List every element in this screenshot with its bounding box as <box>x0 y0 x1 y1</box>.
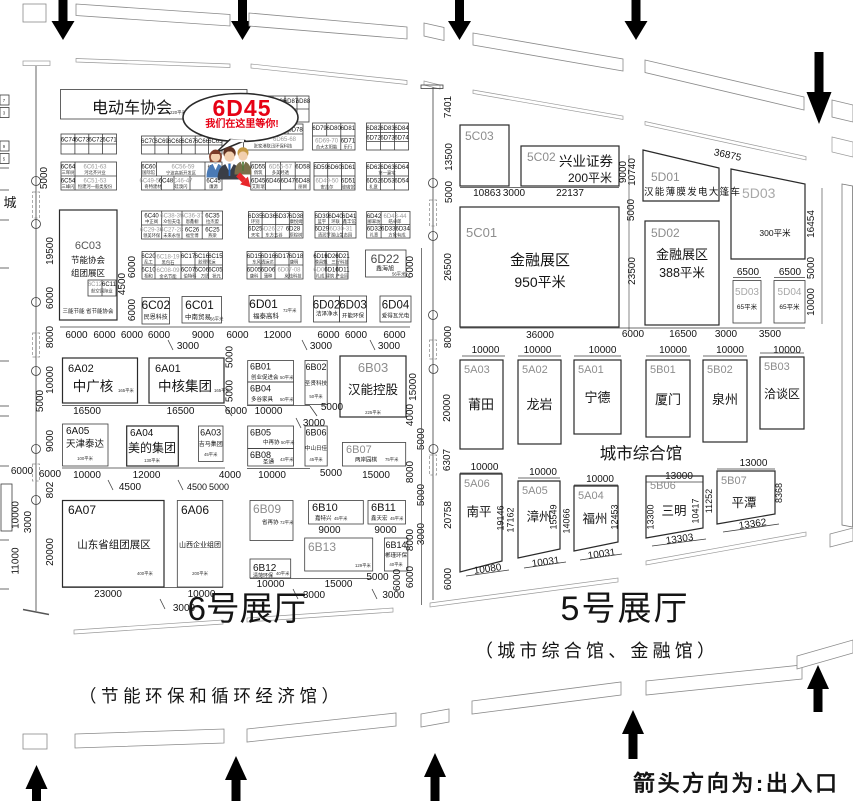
svg-text:6D61: 6D61 <box>341 165 356 171</box>
svg-text:金名节能: 金名节能 <box>159 273 177 280</box>
svg-text:6000: 6000 <box>93 330 116 341</box>
svg-text:3000: 3000 <box>310 341 333 352</box>
svg-text:19500: 19500 <box>45 237 56 265</box>
svg-text:环别: 环别 <box>251 218 260 225</box>
svg-text:汉能控股: 汉能控股 <box>348 383 399 397</box>
svg-text:国际馆: 国际馆 <box>142 169 156 176</box>
svg-text:802: 802 <box>45 481 56 498</box>
svg-text:5000: 5000 <box>225 345 236 368</box>
svg-text:5C02: 5C02 <box>527 150 556 164</box>
svg-text:7401: 7401 <box>443 95 454 118</box>
svg-text:6B09: 6B09 <box>253 502 281 516</box>
svg-text:6307: 6307 <box>442 448 453 471</box>
svg-text:城: 城 <box>3 195 16 210</box>
svg-text:129平米: 129平米 <box>355 562 371 569</box>
svg-text:廉源: 廉源 <box>209 183 218 190</box>
svg-text:6000: 6000 <box>148 330 171 341</box>
svg-text:康悦姆: 康悦姆 <box>290 218 304 225</box>
svg-text:388平米: 388平米 <box>659 266 705 280</box>
svg-text:12453: 12453 <box>610 504 620 529</box>
svg-text:5B03: 5B03 <box>764 361 790 373</box>
svg-text:6C12: 6C12 <box>88 282 103 288</box>
svg-text:5C03: 5C03 <box>465 129 494 143</box>
svg-text:5B07: 5B07 <box>721 475 747 487</box>
svg-text:6000: 6000 <box>317 330 340 341</box>
svg-text:4000: 4000 <box>405 403 416 426</box>
svg-text:城市综合馆: 城市综合馆 <box>600 444 683 463</box>
svg-text:三明: 三明 <box>661 504 686 518</box>
svg-text:5D02: 5D02 <box>651 226 680 240</box>
svg-text:环联: 环联 <box>331 218 340 225</box>
svg-text:6D46: 6D46 <box>266 179 281 185</box>
svg-text:15000: 15000 <box>408 373 419 401</box>
svg-text:相和: 相和 <box>144 273 153 280</box>
svg-text:13300: 13300 <box>646 504 656 529</box>
svg-text:多谷家具: 多谷家具 <box>251 395 274 403</box>
svg-text:10000: 10000 <box>472 345 500 356</box>
svg-text:三好科技: 三好科技 <box>331 259 349 266</box>
svg-text:56平米: 56平米 <box>392 271 406 278</box>
svg-text:艾斯瑞: 艾斯瑞 <box>252 183 266 190</box>
svg-text:6D72: 6D72 <box>366 136 381 142</box>
svg-text:5000: 5000 <box>366 572 389 583</box>
svg-text:福泰高科: 福泰高科 <box>253 311 280 320</box>
svg-text:伯特科: 伯特科 <box>184 273 198 280</box>
svg-text:兴业证券: 兴业证券 <box>559 154 613 169</box>
svg-text:6A02: 6A02 <box>68 363 94 375</box>
svg-text:6B01: 6B01 <box>250 362 271 372</box>
svg-text:拉杰盟: 拉杰盟 <box>206 218 220 225</box>
svg-text:15549: 15549 <box>549 504 559 529</box>
svg-text:宁波高新开发区: 宁波高新开发区 <box>166 170 197 177</box>
svg-text:14066: 14066 <box>562 508 572 533</box>
svg-text:12000: 12000 <box>133 470 161 481</box>
svg-text:4500: 4500 <box>117 272 128 295</box>
svg-text:10000: 10000 <box>659 345 687 356</box>
svg-text:6D82: 6D82 <box>366 126 381 132</box>
svg-text:组团展区: 组团展区 <box>71 268 106 278</box>
svg-text:10417: 10417 <box>691 498 701 523</box>
svg-text:6000: 6000 <box>383 330 406 341</box>
svg-text:11000: 11000 <box>11 547 22 575</box>
svg-text:5A01: 5A01 <box>578 364 604 376</box>
svg-text:天宅: 天宅 <box>251 232 260 239</box>
svg-text:6D02: 6D02 <box>313 300 341 312</box>
svg-text:状元: 状元 <box>212 273 221 280</box>
svg-text:金融展区: 金融展区 <box>656 247 708 262</box>
svg-text:5000: 5000 <box>35 389 46 412</box>
svg-text:50平米: 50平米 <box>281 439 295 446</box>
svg-text:10000: 10000 <box>255 406 283 417</box>
svg-text:爱得瓦光电: 爱得瓦光电 <box>382 312 410 320</box>
svg-text:6D64: 6D64 <box>394 165 409 171</box>
svg-text:模具魁: 模具魁 <box>315 259 329 266</box>
svg-text:6B10: 6B10 <box>312 502 338 514</box>
svg-text:22137: 22137 <box>556 188 584 199</box>
svg-text:17162: 17162 <box>506 507 516 532</box>
svg-text:6000: 6000 <box>127 298 138 321</box>
svg-text:6B05: 6B05 <box>250 428 271 438</box>
svg-text:5A02: 5A02 <box>522 364 548 376</box>
svg-text:乱工: 乱工 <box>144 259 153 266</box>
svg-text:10000: 10000 <box>257 579 285 590</box>
svg-text:26500: 26500 <box>443 253 454 281</box>
svg-text:6D79: 6D79 <box>312 126 327 132</box>
svg-text:45平米: 45平米 <box>334 515 348 522</box>
svg-text:多美经透: 多美经透 <box>272 169 290 176</box>
svg-text:恒建河一般类股份: 恒建河一般类股份 <box>78 183 113 190</box>
svg-text:8000: 8000 <box>405 460 416 483</box>
svg-text:6B07: 6B07 <box>346 444 372 456</box>
svg-text:6000: 6000 <box>65 330 88 341</box>
svg-text:6D22: 6D22 <box>371 252 400 266</box>
svg-text:乐行: 乐行 <box>344 144 353 151</box>
svg-text:19146: 19146 <box>496 505 506 530</box>
svg-text:3500: 3500 <box>759 329 782 340</box>
svg-text:6C02: 6C02 <box>141 298 170 312</box>
svg-text:中核集团: 中核集团 <box>158 379 212 394</box>
svg-text:8368: 8368 <box>774 483 784 503</box>
svg-text:恩鑫橱: 恩鑫橱 <box>186 218 200 225</box>
svg-text:蒲种: 蒲种 <box>264 273 273 280</box>
svg-text:6A04: 6A04 <box>130 428 154 439</box>
svg-text:5000: 5000 <box>806 256 817 279</box>
svg-text:8000: 8000 <box>443 325 454 348</box>
svg-text:6A05: 6A05 <box>66 426 90 437</box>
svg-text:圣贤科技: 圣贤科技 <box>305 379 328 387</box>
svg-text:4000: 4000 <box>219 470 242 481</box>
svg-text:40平米: 40平米 <box>276 570 290 577</box>
svg-text:6C11: 6C11 <box>102 282 117 288</box>
svg-text:6000: 6000 <box>226 330 249 341</box>
svg-text:16500: 16500 <box>167 406 195 417</box>
svg-text:礼成 建筑: 礼成 建筑 <box>316 273 335 280</box>
svg-text:6D04: 6D04 <box>382 300 410 312</box>
svg-text:5A06: 5A06 <box>464 478 490 490</box>
svg-text:10000: 10000 <box>11 501 22 529</box>
svg-text:泉州: 泉州 <box>712 392 738 407</box>
svg-text:蓝宇: 蓝宇 <box>318 218 327 224</box>
svg-text:中再协: 中再协 <box>263 438 280 446</box>
svg-text:6000: 6000 <box>345 330 368 341</box>
svg-text:23000: 23000 <box>94 589 122 600</box>
svg-text:6A07: 6A07 <box>68 503 96 517</box>
svg-text:6C03: 6C03 <box>75 240 101 252</box>
svg-text:美的集团: 美的集团 <box>128 440 176 455</box>
svg-text:6C71: 6C71 <box>102 138 117 144</box>
svg-text:6D17: 6D17 <box>275 254 290 260</box>
svg-text:宁德: 宁德 <box>584 390 610 405</box>
svg-text:6C17: 6C17 <box>181 254 196 260</box>
svg-text:130平米: 130平米 <box>144 457 160 464</box>
svg-text:6000: 6000 <box>39 469 62 480</box>
svg-text:方象有成: 方象有成 <box>388 232 406 239</box>
svg-text:50平米: 50平米 <box>280 374 294 381</box>
svg-text:5000: 5000 <box>626 198 637 221</box>
svg-text:康明: 康明 <box>290 259 299 266</box>
svg-text:玻璃馆: 玻璃馆 <box>342 184 356 191</box>
svg-text:中正阀: 中正阀 <box>145 218 158 225</box>
svg-text:中广核: 中广核 <box>73 379 114 394</box>
svg-text:清润罗湖山生态园: 清润罗湖山生态园 <box>318 232 352 239</box>
svg-text:6号展厅: 6号展厅 <box>187 591 306 628</box>
svg-text:创业促进会: 创业促进会 <box>251 373 279 381</box>
svg-text:郴瑾环保: 郴瑾环保 <box>385 551 408 559</box>
svg-text:40平米: 40平米 <box>389 561 403 568</box>
svg-text:中山日佳: 中山日佳 <box>305 444 328 452</box>
svg-text:莆田: 莆田 <box>468 397 494 412</box>
svg-text:6B04: 6B04 <box>250 384 271 394</box>
svg-text:奇特建材: 奇特建材 <box>144 183 162 190</box>
svg-text:中南贸易: 中南贸易 <box>185 312 211 321</box>
svg-text:10000: 10000 <box>716 345 744 356</box>
svg-text:产业园: 产业园 <box>336 273 349 280</box>
svg-text:225平米: 225平米 <box>365 409 381 416</box>
svg-text:6D80: 6D80 <box>327 126 342 132</box>
svg-text:3000: 3000 <box>23 510 34 533</box>
svg-text:吉马集团: 吉马集团 <box>199 440 223 448</box>
svg-text:10863: 10863 <box>473 188 501 199</box>
svg-text:20000: 20000 <box>45 538 56 566</box>
svg-text:9000: 9000 <box>318 525 341 536</box>
svg-text:福州: 福州 <box>582 511 607 526</box>
svg-text:20758: 20758 <box>443 501 454 529</box>
svg-text:5000: 5000 <box>321 402 344 413</box>
svg-text:950平米: 950平米 <box>514 274 565 290</box>
svg-text:6A03: 6A03 <box>200 428 221 438</box>
svg-text:6B13: 6B13 <box>308 540 336 554</box>
svg-text:5000: 5000 <box>39 166 50 189</box>
svg-text:众恒夫电: 众恒夫电 <box>163 218 181 225</box>
svg-text:原棕树: 原棕树 <box>290 232 304 239</box>
svg-text:6B06: 6B06 <box>305 428 326 438</box>
svg-text:6C72: 6C72 <box>89 138 104 144</box>
svg-text:6000: 6000 <box>443 567 454 590</box>
svg-text:165平米: 165平米 <box>118 387 134 394</box>
svg-text:10000: 10000 <box>806 288 817 316</box>
svg-text:10000: 10000 <box>524 345 552 356</box>
svg-text:6D53: 6D53 <box>380 179 395 185</box>
svg-text:6000: 6000 <box>392 568 403 591</box>
svg-text:胶理联运: 胶理联运 <box>198 259 216 266</box>
svg-text:65平米: 65平米 <box>779 302 800 311</box>
svg-text:5D04: 5D04 <box>778 287 802 298</box>
svg-text:15000: 15000 <box>362 470 390 481</box>
svg-text:72平米: 72平米 <box>283 307 297 314</box>
svg-text:10000: 10000 <box>471 462 499 473</box>
svg-text:6D73: 6D73 <box>380 136 395 142</box>
svg-text:6000: 6000 <box>45 286 56 309</box>
svg-text:6000: 6000 <box>622 329 645 340</box>
svg-text:6D54: 6D54 <box>394 179 409 185</box>
svg-text:13000: 13000 <box>740 458 768 469</box>
svg-text:10000: 10000 <box>73 470 101 481</box>
svg-text:合大太阳能: 合大太阳能 <box>316 144 338 151</box>
svg-text:三晖树: 三晖树 <box>62 169 76 176</box>
svg-text:5A04: 5A04 <box>578 490 604 502</box>
svg-text:6B14: 6B14 <box>385 540 406 550</box>
svg-text:6D83: 6D83 <box>380 126 395 132</box>
svg-text:5A03: 5A03 <box>464 364 490 376</box>
svg-text:10000: 10000 <box>773 345 801 356</box>
svg-text:9000: 9000 <box>45 429 56 452</box>
svg-text:航空国际业: 航空国际业 <box>91 288 113 295</box>
svg-text:6000: 6000 <box>405 565 416 588</box>
svg-text:6B11: 6B11 <box>371 502 396 514</box>
svg-text:郦翠坊: 郦翠坊 <box>368 218 382 225</box>
svg-text:我们在这里等你!: 我们在这里等你! <box>205 117 278 130</box>
svg-text:省再协: 省再协 <box>262 518 279 526</box>
svg-text:民恩科技: 民恩科技 <box>144 313 168 321</box>
svg-text:5D01: 5D01 <box>651 170 680 184</box>
svg-text:200平米: 200平米 <box>568 171 612 185</box>
svg-text:45平米: 45平米 <box>390 515 404 522</box>
svg-text:13500: 13500 <box>444 143 455 171</box>
svg-text:12000: 12000 <box>264 330 292 341</box>
svg-text:10000: 10000 <box>589 345 617 356</box>
svg-text:东方五谷: 东方五谷 <box>265 232 283 239</box>
svg-text:6000: 6000 <box>127 255 138 278</box>
svg-text:山东省组团展区: 山东省组团展区 <box>77 538 151 551</box>
svg-text:6A01: 6A01 <box>155 363 181 375</box>
svg-text:100平米: 100平米 <box>77 455 93 462</box>
svg-text:6000: 6000 <box>11 466 34 477</box>
svg-text:黑包石: 黑包石 <box>162 259 176 266</box>
svg-text:5B02: 5B02 <box>707 364 733 376</box>
svg-text:6000: 6000 <box>225 406 248 417</box>
svg-text:43平米: 43平米 <box>280 456 294 463</box>
svg-text:45平米: 45平米 <box>309 456 323 463</box>
svg-text:6D84: 6D84 <box>394 126 409 132</box>
svg-text:鑫天宏: 鑫天宏 <box>371 514 388 522</box>
svg-text:6B08: 6B08 <box>250 450 271 460</box>
svg-text:300平米: 300平米 <box>759 228 791 238</box>
svg-text:山西企业组团: 山西企业组团 <box>179 540 221 549</box>
svg-text:6000: 6000 <box>405 255 416 278</box>
svg-text:6D74: 6D74 <box>394 136 409 142</box>
svg-text:5000: 5000 <box>225 379 236 402</box>
svg-text:16500: 16500 <box>73 406 101 417</box>
svg-text:6A06: 6A06 <box>181 503 209 517</box>
svg-text:南平: 南平 <box>466 504 491 519</box>
svg-text:领美环保: 领美环保 <box>143 232 161 239</box>
svg-text:岚炫科技: 岚炫科技 <box>284 273 302 280</box>
svg-text:鑫丰馆: 鑫丰馆 <box>343 218 357 225</box>
svg-text:56平米: 56平米 <box>210 316 224 323</box>
svg-text:4500: 4500 <box>187 482 207 492</box>
svg-text:5000: 5000 <box>320 468 343 479</box>
svg-text:6D47: 6D47 <box>281 179 296 185</box>
svg-text:礼意: 礼意 <box>370 232 379 239</box>
svg-text:6D45: 6D45 <box>213 95 272 121</box>
svg-text:8000: 8000 <box>405 528 416 551</box>
svg-text:75平米: 75平米 <box>385 456 399 463</box>
svg-text:节能协会: 节能协会 <box>71 255 106 265</box>
svg-text:5D03: 5D03 <box>735 287 759 298</box>
svg-text:9000: 9000 <box>374 525 397 536</box>
svg-text:6D01: 6D01 <box>249 297 278 311</box>
svg-text:皓卓郎: 皓卓郎 <box>389 218 402 225</box>
svg-text:5B01: 5B01 <box>650 364 676 376</box>
svg-text:65平米: 65平米 <box>737 302 758 311</box>
svg-text:福宝博: 福宝博 <box>186 232 200 239</box>
svg-text:燕梁: 燕梁 <box>208 232 217 239</box>
svg-text:5000: 5000 <box>209 482 229 492</box>
svg-text:200平米: 200平米 <box>192 570 208 577</box>
svg-text:5B06: 5B06 <box>650 480 676 492</box>
svg-text:三峰闪: 三峰闪 <box>62 183 75 190</box>
svg-text:汉能薄膜发电大篷车: 汉能薄膜发电大篷车 <box>644 186 740 198</box>
svg-text:6D88: 6D88 <box>296 99 311 105</box>
svg-text:16454: 16454 <box>806 210 817 238</box>
svg-text:15000: 15000 <box>325 579 353 590</box>
svg-text:36000: 36000 <box>526 330 554 341</box>
svg-text:45平米: 45平米 <box>204 451 218 458</box>
svg-text:6D58: 6D58 <box>295 165 310 171</box>
svg-text:洽谈区: 洽谈区 <box>764 387 800 401</box>
svg-text:10000: 10000 <box>586 474 614 485</box>
svg-text:丽阙: 丽阙 <box>298 183 307 190</box>
svg-text:张家港联迅环保科技: 张家港联迅环保科技 <box>254 143 293 150</box>
svg-text:3000: 3000 <box>503 188 526 199</box>
svg-text:10000: 10000 <box>45 366 56 394</box>
svg-text:10000: 10000 <box>529 467 557 478</box>
svg-text:厦门: 厦门 <box>655 392 681 407</box>
svg-text:康科: 康科 <box>250 273 259 280</box>
svg-text:硅溴闪: 硅溴闪 <box>175 183 188 190</box>
svg-text:礼意: 礼意 <box>369 184 378 191</box>
svg-text:5C01: 5C01 <box>466 225 497 240</box>
svg-text:6D03: 6D03 <box>339 300 367 312</box>
svg-text:400平米: 400平米 <box>137 570 153 577</box>
svg-text:6500: 6500 <box>779 267 802 278</box>
svg-text:10000: 10000 <box>258 470 286 481</box>
svg-text:东风透运达: 东风透运达 <box>252 259 274 266</box>
svg-text:6C01: 6C01 <box>185 298 214 312</box>
svg-text:20000: 20000 <box>442 394 453 422</box>
svg-text:6B03: 6B03 <box>358 360 388 375</box>
svg-text:5000: 5000 <box>444 180 455 203</box>
svg-text:圣通: 圣通 <box>263 458 275 466</box>
svg-text:6000: 6000 <box>121 330 144 341</box>
svg-text:50平米: 50平米 <box>280 396 294 403</box>
svg-text:安吉尔: 安吉尔 <box>321 184 335 191</box>
svg-text:俏筑: 俏筑 <box>254 169 263 176</box>
svg-text:5A05: 5A05 <box>522 485 548 497</box>
svg-text:两岸园棋: 两岸园棋 <box>355 456 378 464</box>
svg-text:万质: 万质 <box>201 273 210 280</box>
svg-text:第一豪宅: 第一豪宅 <box>378 170 396 177</box>
svg-text:4500: 4500 <box>119 482 142 493</box>
svg-text:天津泰达: 天津泰达 <box>66 438 105 450</box>
svg-text:河北齐兴业: 河北齐兴业 <box>84 169 106 176</box>
svg-text:50平米: 50平米 <box>309 393 323 400</box>
svg-text:11252: 11252 <box>704 489 714 513</box>
svg-text:6500: 6500 <box>737 267 760 278</box>
svg-text:72平米: 72平米 <box>280 519 294 526</box>
svg-text:三能节能 省节能协会: 三能节能 省节能协会 <box>62 307 114 315</box>
svg-text:洁泽净水: 洁泽净水 <box>316 310 339 318</box>
svg-text:5D03: 5D03 <box>742 185 776 201</box>
svg-text:清菏环保: 清菏环保 <box>253 572 273 579</box>
svg-text:6C73: 6C73 <box>75 138 90 144</box>
svg-text:嘉特兴: 嘉特兴 <box>315 514 332 522</box>
svg-text:8000: 8000 <box>45 325 56 348</box>
svg-text:6D81: 6D81 <box>341 126 356 132</box>
svg-text:金融展区: 金融展区 <box>510 252 570 269</box>
svg-text:平潭: 平潭 <box>731 496 756 510</box>
svg-text:9000: 9000 <box>192 330 215 341</box>
